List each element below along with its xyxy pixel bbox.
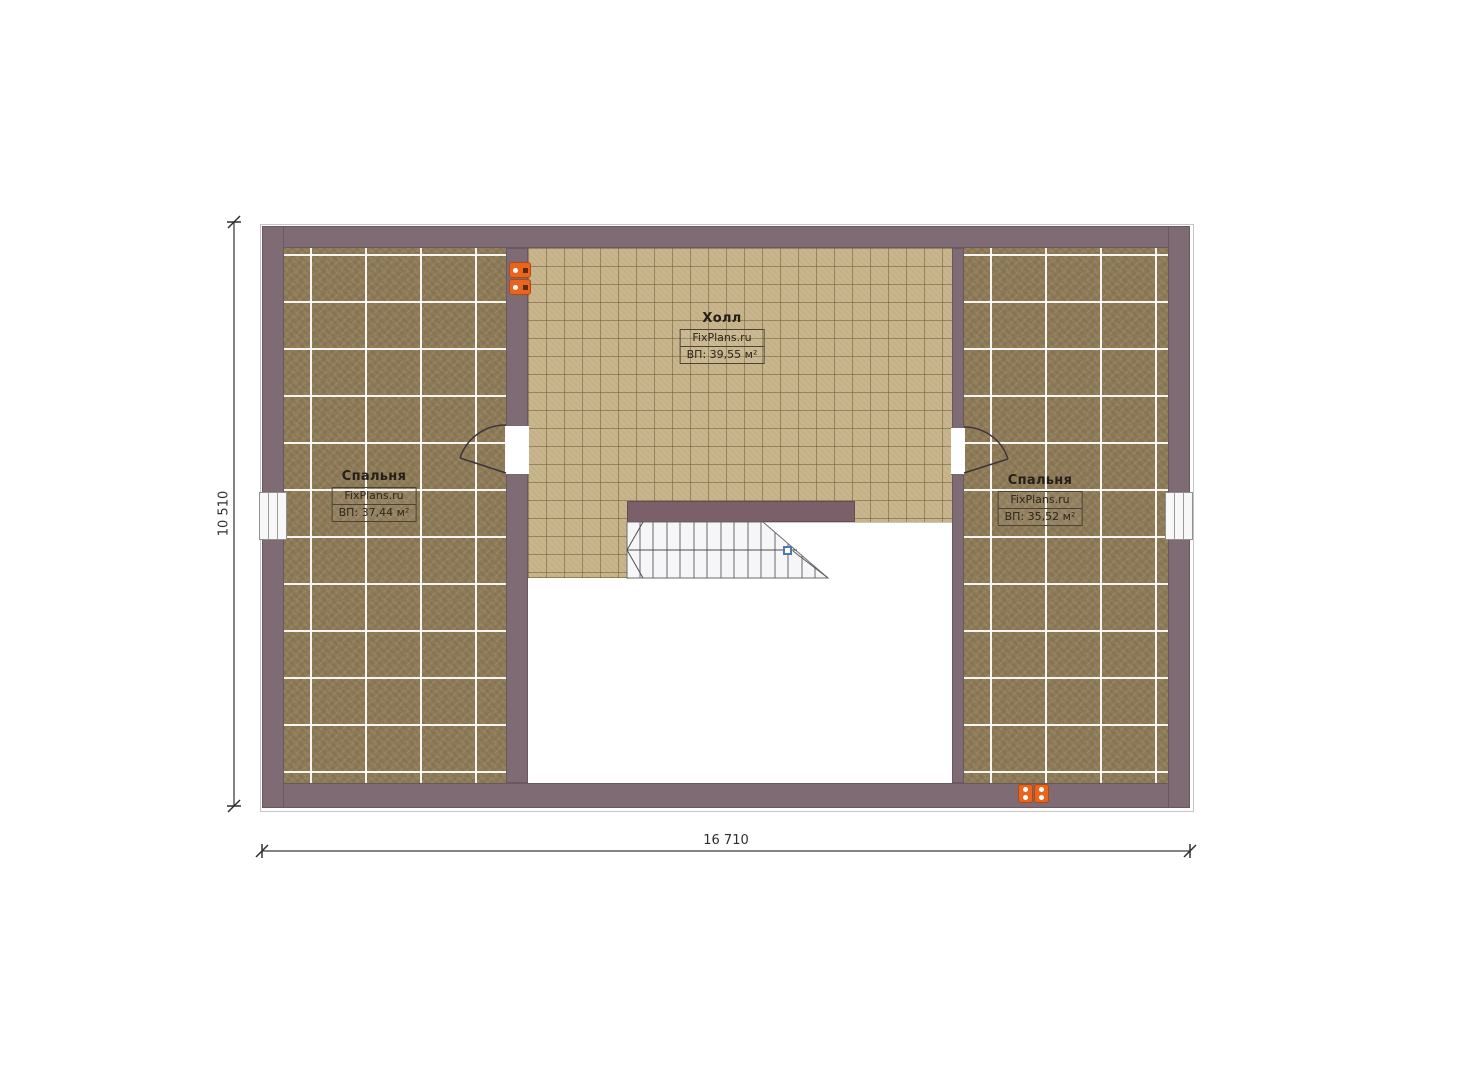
door-bedroom-right[interactable] bbox=[951, 427, 965, 475]
room-area-text: ВП: 35,52 м² bbox=[999, 508, 1082, 525]
tile-edge-line bbox=[528, 577, 628, 578]
wall-top bbox=[262, 226, 1190, 248]
door-bedroom-left[interactable] bbox=[505, 425, 529, 475]
outlet-pin bbox=[513, 285, 518, 290]
room-area-text: ВП: 37,44 м² bbox=[333, 504, 416, 521]
watermark-text: FixPlans.ru bbox=[681, 330, 764, 346]
room-name: Спальня bbox=[342, 469, 406, 484]
room-name: Спальня bbox=[1008, 473, 1072, 488]
dimension-height-label: 10 510 bbox=[217, 486, 232, 542]
room-area-text: ВП: 39,55 м² bbox=[681, 346, 764, 363]
outlet-pin bbox=[1039, 795, 1044, 800]
power-outlet-icon[interactable] bbox=[509, 262, 531, 278]
room-label-bedroom-right: Спальня FixPlans.ru ВП: 35,52 м² bbox=[998, 473, 1083, 526]
outlet-mark bbox=[523, 268, 528, 273]
stair-direction-marker[interactable] bbox=[783, 546, 792, 555]
stairwell-wall bbox=[627, 501, 855, 522]
power-outlet-icon[interactable] bbox=[1034, 784, 1049, 803]
outlet-pin bbox=[513, 268, 518, 273]
room-info-box: FixPlans.ru ВП: 37,44 м² bbox=[332, 487, 417, 522]
floor-plan-canvas: Спальня FixPlans.ru ВП: 37,44 м² Холл Fi… bbox=[0, 0, 1474, 1080]
window-left[interactable] bbox=[259, 492, 287, 540]
room-label-bedroom-left: Спальня FixPlans.ru ВП: 37,44 м² bbox=[332, 469, 417, 522]
outlet-pin bbox=[1023, 795, 1028, 800]
room-name: Холл bbox=[702, 311, 741, 326]
watermark-text: FixPlans.ru bbox=[999, 492, 1082, 508]
window-right[interactable] bbox=[1165, 492, 1193, 540]
room-info-box: FixPlans.ru ВП: 39,55 м² bbox=[680, 329, 765, 364]
power-outlet-icon[interactable] bbox=[1018, 784, 1033, 803]
power-outlet-icon[interactable] bbox=[509, 279, 531, 295]
outlet-pin bbox=[1023, 787, 1028, 792]
outlet-mark bbox=[523, 285, 528, 290]
dimension-width-label: 16 710 bbox=[690, 833, 762, 848]
room-info-box: FixPlans.ru ВП: 35,52 м² bbox=[998, 491, 1083, 526]
room-label-hall: Холл FixPlans.ru ВП: 39,55 м² bbox=[680, 311, 765, 364]
watermark-text: FixPlans.ru bbox=[333, 488, 416, 504]
wall-bottom bbox=[262, 783, 1190, 808]
outlet-pin bbox=[1039, 787, 1044, 792]
wall-interior-right bbox=[952, 248, 964, 783]
wall-interior-left bbox=[506, 248, 528, 783]
